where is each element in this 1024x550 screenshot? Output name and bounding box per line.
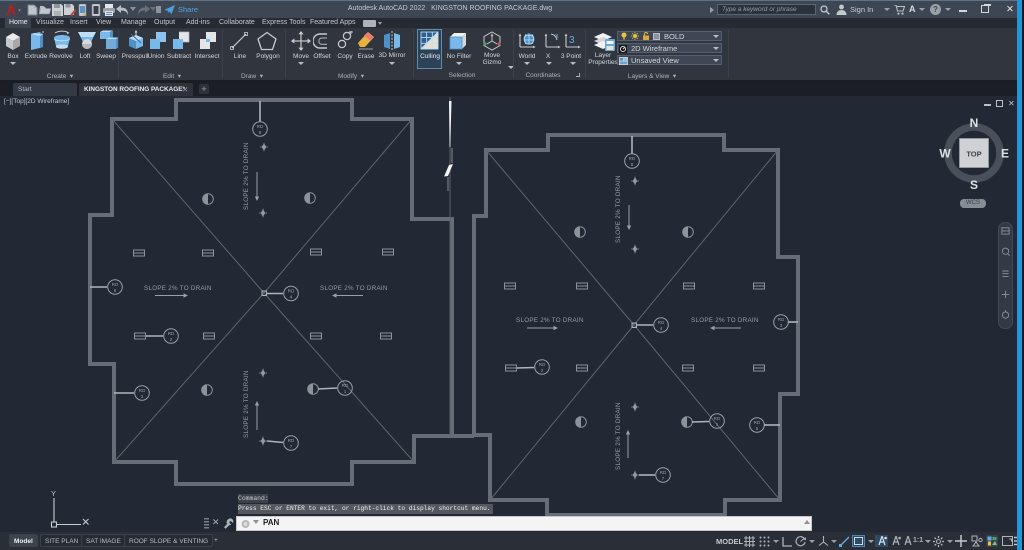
svg-text:5: 5 <box>259 130 262 135</box>
svg-text:SLOPE 2% TO DRAIN: SLOPE 2% TO DRAIN <box>691 317 759 324</box>
svg-text:7: 7 <box>290 444 293 449</box>
svg-text:S: S <box>970 178 978 190</box>
svg-text:1: 1 <box>344 389 347 394</box>
svg-text:RD: RD <box>139 388 146 393</box>
svg-text:SLOPE 2% TO DRAIN: SLOPE 2% TO DRAIN <box>615 175 622 243</box>
svg-text:RD: RD <box>658 320 665 325</box>
svg-text:2: 2 <box>541 368 544 373</box>
svg-text:1: 1 <box>716 422 719 427</box>
svg-text:5: 5 <box>756 426 759 431</box>
svg-text:7: 7 <box>662 476 665 481</box>
svg-text:TOP: TOP <box>966 150 981 159</box>
svg-text:2: 2 <box>170 337 173 342</box>
svg-text:Y: Y <box>51 489 56 498</box>
svg-text:RD: RD <box>342 383 349 388</box>
svg-text:E: E <box>1001 147 1009 161</box>
svg-text:RD: RD <box>539 362 546 367</box>
svg-text:RD: RD <box>629 156 636 161</box>
svg-text:N: N <box>970 116 979 130</box>
svg-text:SLOPE 2% TO DRAIN: SLOPE 2% TO DRAIN <box>144 285 212 292</box>
svg-text:4: 4 <box>660 326 663 331</box>
svg-text:SLOPE 2% TO DRAIN: SLOPE 2% TO DRAIN <box>615 402 622 470</box>
svg-text:RD: RD <box>714 416 721 421</box>
svg-text:3: 3 <box>141 394 144 399</box>
svg-text:RD: RD <box>754 420 761 425</box>
svg-text:SLOPE 2% TO DRAIN: SLOPE 2% TO DRAIN <box>243 142 250 210</box>
svg-text:RD: RD <box>257 124 264 129</box>
svg-text:RD: RD <box>288 438 295 443</box>
svg-text:W: W <box>939 147 951 161</box>
svg-text:4: 4 <box>290 295 293 300</box>
svg-text:SLOPE 2% TO DRAIN: SLOPE 2% TO DRAIN <box>243 370 250 438</box>
svg-text:SLOPE 2% TO DRAIN: SLOPE 2% TO DRAIN <box>516 317 584 324</box>
svg-text:x: x <box>555 33 559 40</box>
svg-text:RD: RD <box>660 470 667 475</box>
svg-text:3: 3 <box>780 323 783 328</box>
svg-text:6: 6 <box>114 288 117 293</box>
svg-text:3: 3 <box>569 35 575 46</box>
svg-text:RD: RD <box>112 282 119 287</box>
svg-text:RD: RD <box>168 331 175 336</box>
svg-text:SLOPE 2% TO DRAIN: SLOPE 2% TO DRAIN <box>320 285 388 292</box>
svg-text:RD: RD <box>778 317 785 322</box>
svg-text:RD: RD <box>288 289 295 294</box>
svg-text:8: 8 <box>631 162 634 167</box>
